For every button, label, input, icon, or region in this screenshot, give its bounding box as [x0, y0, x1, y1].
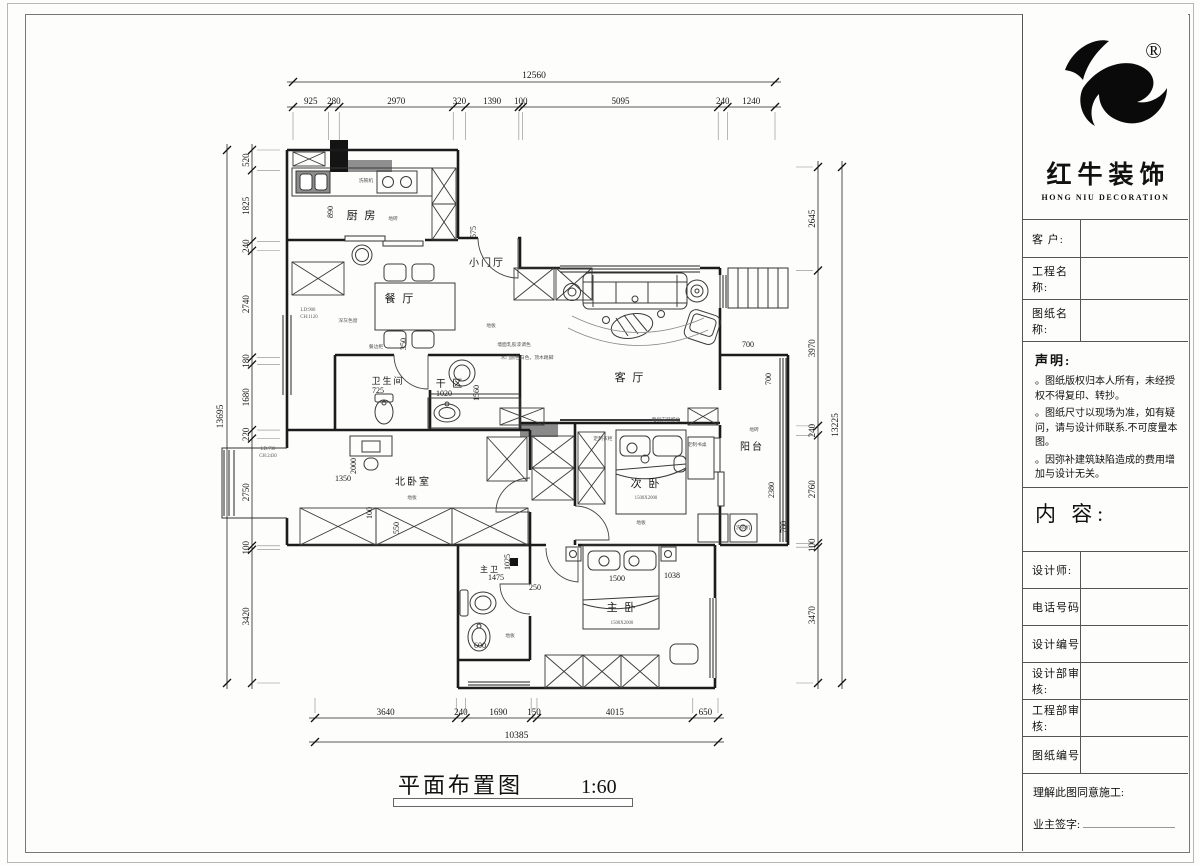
brand-name-en: HONG NIU DECORATION: [1023, 193, 1188, 202]
dim-label: 3970: [807, 339, 817, 358]
drawing-caption: 平面布置图 1:60: [398, 768, 617, 800]
window: [710, 598, 716, 678]
field-label: 工程名称:: [1023, 258, 1081, 299]
row-value: [1081, 626, 1188, 662]
dim-label: 180: [241, 354, 251, 368]
interior-dim: 575: [469, 226, 478, 238]
chair: [384, 264, 406, 281]
cabinet: [698, 514, 728, 542]
dim-label: 320: [453, 96, 467, 106]
dim-label: 5095: [611, 96, 630, 106]
signature-label: 业主签字:: [1033, 819, 1080, 831]
annotation: 定制书桌: [687, 441, 706, 448]
room-label: 主 卧: [607, 601, 638, 614]
dim-label: 3470: [807, 606, 817, 625]
field-label: 图纸名称:: [1023, 300, 1081, 341]
row-value: [1081, 663, 1188, 699]
field-row-project: 工程名称:: [1023, 258, 1188, 300]
dim-label: 240: [241, 239, 251, 253]
dim-label: 1825: [241, 196, 251, 215]
cabinet: [432, 204, 456, 240]
info-row-sheet-no: 图纸编号: [1023, 737, 1188, 774]
annotation: 地板: [407, 494, 417, 501]
annotation: 深灰色窗: [338, 317, 357, 324]
sofa: [583, 273, 687, 309]
interior-dim: 250: [529, 583, 541, 592]
annotation: CH:1120: [300, 315, 318, 320]
dim-label: 2750: [241, 483, 251, 502]
room-label: 客 厅: [615, 370, 646, 384]
field-row-drawing: 图纸名称:: [1023, 300, 1188, 342]
cabinet: [532, 468, 574, 500]
window: [780, 358, 786, 542]
statement-item: 。图纸版权归本人所有，未经授权不得复印、转抄。: [1035, 375, 1182, 404]
floor-plan-canvas: 9252802970320139010050952401240125605201…: [0, 0, 1200, 865]
room-label: 餐 厅: [385, 291, 416, 305]
cabinet: [514, 268, 554, 300]
vanity: [428, 398, 520, 428]
row-value: [1081, 737, 1188, 773]
annotation: 洗衣机: [736, 524, 751, 531]
interior-dim: 780: [779, 521, 788, 533]
cabinet: [292, 262, 344, 295]
dim-total-label: 13695: [216, 404, 226, 428]
dim-label: 1240: [742, 96, 761, 106]
construction-lines: [222, 236, 788, 518]
owner-signature: 业主签字:: [1033, 816, 1188, 832]
title-block-panel: ® 红牛装饰 HONG NIU DECORATION 客 户: 工程名称: 图纸…: [1022, 14, 1188, 851]
annotation: 地砖: [388, 215, 398, 222]
dimension-chain: [287, 103, 781, 140]
statement-item: 。因弥补建筑缺陷造成的费用增加与设计无关。: [1035, 454, 1182, 483]
brand-block: ® 红牛装饰 HONG NIU DECORATION: [1023, 14, 1188, 220]
signature-line: [1083, 817, 1175, 828]
drawing-scale: 1:60: [581, 776, 617, 799]
row-value: [1081, 700, 1188, 736]
chair: [412, 264, 434, 281]
lamp-table: [686, 280, 708, 302]
field-row-customer: 客 户:: [1023, 220, 1188, 258]
bed: [583, 545, 659, 629]
cabinet: [293, 152, 325, 166]
room-label: 厨 房: [347, 209, 378, 222]
interior-dim: 2000: [349, 458, 358, 474]
row-label: 设计部审核:: [1023, 663, 1081, 699]
dim-label: 100: [514, 96, 528, 106]
annotation: 电视安装留位: [652, 416, 681, 423]
annotation: 定制衣柜: [593, 435, 612, 442]
room-label: 小门厅: [469, 256, 505, 269]
cabinet: [578, 468, 605, 504]
info-row-design-review: 设计部审核:: [1023, 663, 1188, 700]
interior-dim: 1475: [488, 573, 504, 582]
room-label: 次 卧: [631, 476, 662, 490]
cabinet: [487, 437, 527, 481]
toilet: [460, 590, 468, 616]
interior-dim: 1038: [664, 571, 680, 580]
bed: [616, 430, 686, 514]
dim-label: 650: [699, 707, 713, 717]
row-label: 设计师:: [1023, 552, 1081, 588]
info-row-phone: 电话号码: [1023, 589, 1188, 626]
row-value: [1081, 589, 1188, 625]
interior-dim: 700: [764, 373, 773, 385]
dim-label: 925: [304, 96, 318, 106]
chair: [412, 331, 434, 348]
annotation: 1500X2000: [611, 621, 634, 626]
dim-label: 1690: [489, 707, 508, 717]
cabinet: [376, 508, 452, 545]
row-value: [1081, 552, 1188, 588]
interior-dim: 700: [742, 340, 754, 349]
annotation: LD:900: [301, 308, 317, 313]
annotation: LD:730: [261, 447, 277, 452]
annotation: 洗碗机: [359, 177, 374, 184]
interior-dim: 725: [372, 386, 384, 395]
annotation: 木门颜色白色，顶木踢脚: [501, 354, 554, 361]
agreement-text: 理解此图同意施工:: [1033, 784, 1188, 800]
desk: [350, 436, 392, 456]
dimension-chain: [248, 144, 280, 689]
dim-label: 2645: [807, 209, 817, 228]
dim-label: 220: [241, 427, 251, 441]
dim-label: 4015: [606, 707, 625, 717]
window: [224, 450, 234, 516]
annotation: 地板: [636, 519, 646, 526]
dim-label: 2760: [807, 480, 817, 499]
dim-label: 240: [716, 96, 730, 106]
interior-dim: 2380: [767, 482, 776, 498]
statement-item: 。图纸尺寸以现场为准，如有疑问，请与设计师联系.不可度量本图。: [1035, 407, 1182, 451]
field-value: [1081, 220, 1188, 257]
dimension-chain: [309, 698, 724, 722]
dim-total-label: 10385: [505, 731, 529, 741]
dim-total-label: 13225: [831, 413, 841, 437]
interior-dim: 100: [365, 507, 374, 519]
drawing-sheet: 9252802970320139010050952401240125605201…: [0, 0, 1200, 865]
annotation: 餐边柜: [369, 343, 384, 350]
row-label: 图纸编号: [1023, 737, 1081, 773]
dim-label: 280: [327, 96, 341, 106]
window: [720, 275, 726, 308]
interior-dim: 550: [392, 522, 401, 534]
window: [560, 266, 700, 272]
annotation: 地砖: [749, 426, 759, 433]
dim-label: 520: [241, 153, 251, 167]
chair: [364, 458, 378, 470]
dim-label: 240: [807, 423, 817, 437]
dim-label: 2970: [387, 96, 406, 106]
info-row-eng-review: 工程部审核:: [1023, 700, 1188, 737]
row-label: 设计编号: [1023, 626, 1081, 662]
field-value: [1081, 258, 1188, 299]
annotation: CH:2430: [259, 454, 277, 459]
dim-label: 100: [241, 541, 251, 555]
cabinet: [583, 655, 621, 688]
interior-dim: 1020: [436, 389, 452, 398]
dim-label: 100: [807, 538, 817, 552]
dim-label: 3640: [377, 707, 396, 717]
chair: [670, 644, 698, 664]
annotation: 墙面乳胶漆调色: [497, 341, 531, 348]
field-label: 客 户:: [1023, 220, 1081, 257]
content-label: 内 容:: [1023, 488, 1188, 552]
interior-dim: 1560: [472, 385, 481, 401]
drawing-title: 平面布置图: [398, 768, 523, 800]
cabinet: [621, 655, 659, 688]
interior-dim: 1350: [335, 474, 351, 483]
room-label: 北卧室: [395, 475, 431, 488]
info-row-designer: 设计师:: [1023, 552, 1188, 589]
dim-label: 150: [527, 707, 541, 717]
room-label: 阳台: [740, 440, 764, 453]
doors: [394, 238, 609, 614]
interior-dim: 600: [474, 641, 486, 650]
registered-mark: ®: [1145, 38, 1162, 64]
armchair: [682, 308, 722, 346]
dining-table: [375, 283, 455, 330]
field-value: [1081, 300, 1188, 341]
annotation: 1500X2000: [635, 496, 658, 501]
cabinet: [432, 168, 456, 204]
cabinet: [532, 436, 574, 468]
interior-dim: 890: [326, 206, 335, 218]
dim-label: 240: [454, 707, 468, 717]
dim-label: 1390: [483, 96, 502, 106]
scale-bar: [393, 798, 633, 807]
statement-block: 声明: 。图纸版权归本人所有，未经授权不得复印、转抄。 。图纸尺寸以现场为准，如…: [1023, 342, 1188, 488]
annotation: 地板: [505, 632, 515, 639]
info-row-design-no: 设计编号: [1023, 626, 1188, 663]
dim-label: 1680: [241, 388, 251, 407]
statement-title: 声明:: [1035, 350, 1182, 369]
interior-dim: 1025: [503, 554, 512, 570]
interior-dim: 1500: [609, 574, 625, 583]
cabinet: [545, 655, 583, 688]
room-label: 卫生间: [371, 375, 404, 386]
row-label: 工程部审核:: [1023, 700, 1081, 736]
interior-dim: 350: [399, 338, 408, 350]
window: [283, 315, 291, 395]
signature-block: 理解此图同意施工: 业主签字:: [1023, 774, 1188, 850]
dim-label: 2740: [241, 295, 251, 314]
cabinet: [452, 508, 528, 545]
row-label: 电话号码: [1023, 589, 1081, 625]
nightstand: [661, 547, 676, 561]
nightstand: [566, 547, 581, 561]
dim-total-label: 12560: [522, 71, 546, 81]
brand-name-cn: 红牛装饰: [1029, 155, 1188, 191]
annotation: 地板: [486, 322, 496, 329]
dim-label: 3420: [241, 607, 251, 626]
